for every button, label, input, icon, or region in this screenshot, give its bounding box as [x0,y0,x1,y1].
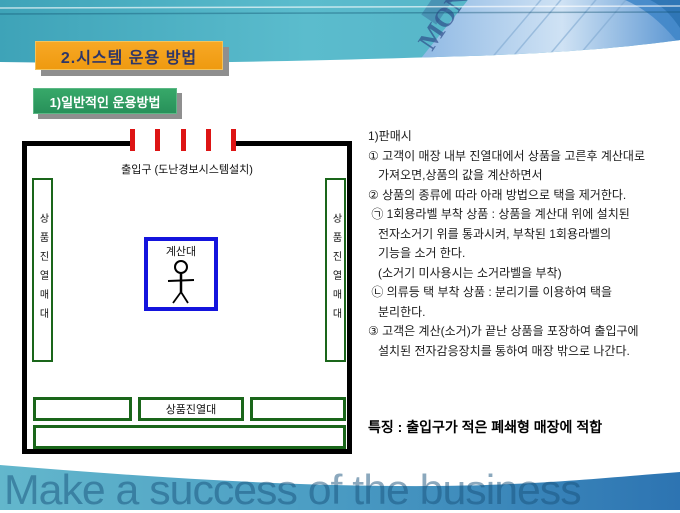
procedure-line: ② 상품의 종류에 따라 아래 방법으로 택을 제거한다. [368,186,676,206]
sensor-pillar-icon [231,129,236,151]
procedure-line: ① 고객이 매장 내부 진열대에서 상품을 고른후 계산대로 [368,147,676,167]
watermark-text: Make a success of the business [4,469,680,511]
bottom-shelf-label: 상품진열대 [166,401,217,417]
bottom-shelf-wide [33,425,346,449]
checkout-label: 계산대 [166,243,196,259]
sensor-pillar-icon [155,129,160,151]
newspaper-money-image: MONEY [412,0,680,62]
sensor-pillar-icon [130,129,135,151]
procedure-line: ㉠ 1회용라벨 부착 상품 : 상품을 계산대 위에 설치된 [368,205,676,225]
left-shelf-label: 상품진열매대 [34,213,51,327]
procedure-line: 가져오면,상품의 값을 계산하면서 [368,166,676,186]
procedure-text-block: 1)판매시 ① 고객이 매장 내부 진열대에서 상품을 고른후 계산대로 가져오… [368,127,676,361]
procedure-line: ㉡ 의류등 택 부착 상품 : 분리기를 이용하여 택을 [368,283,676,303]
procedure-line: 전자소거기 위를 통과시켜, 부착된 1회용라벨의 [368,225,676,245]
procedure-line: 1)판매시 [368,127,676,147]
slide-subtitle-box: 1)일반적인 운용방법 [33,88,177,114]
right-display-shelf: 상품진열매대 [325,178,346,362]
procedure-line: 설치된 전자감응장치를 통하여 매장 밖으로 나간다. [368,342,676,362]
entrance-label: 출입구 (도난경보시스템설치) [62,161,312,177]
right-shelf-label: 상품진열매대 [327,213,344,327]
procedure-line: (소거기 미사용시는 소거라벨을 부착) [368,264,676,284]
checkout-counter: 계산대 [144,237,218,311]
bottom-shelf-left [33,397,132,421]
procedure-line: ③ 고객은 계산(소거)가 끝난 상품을 포장하여 출입구에 [368,322,676,342]
sensor-pillar-icon [181,129,186,151]
slide-title-box: 2.시스템 운용 방법 [35,41,223,70]
bottom-shelf-middle: 상품진열대 [138,397,244,421]
slide-canvas: { "slide": { "title": "2.시스템 운용 방법", "su… [0,0,680,510]
procedure-line: 분리한다. [368,303,676,323]
slide-subtitle: 1)일반적인 운용방법 [50,92,161,111]
procedure-line: 기능을 소거 한다. [368,244,676,264]
cashier-person-icon [161,259,201,305]
slide-title: 2.시스템 운용 방법 [61,44,197,68]
feature-statement: 특징 : 출입구가 적은 폐쇄형 매장에 적합 [368,417,676,437]
left-display-shelf: 상품진열매대 [32,178,53,362]
bottom-shelf-right [250,397,346,421]
sensor-pillar-icon [206,129,211,151]
